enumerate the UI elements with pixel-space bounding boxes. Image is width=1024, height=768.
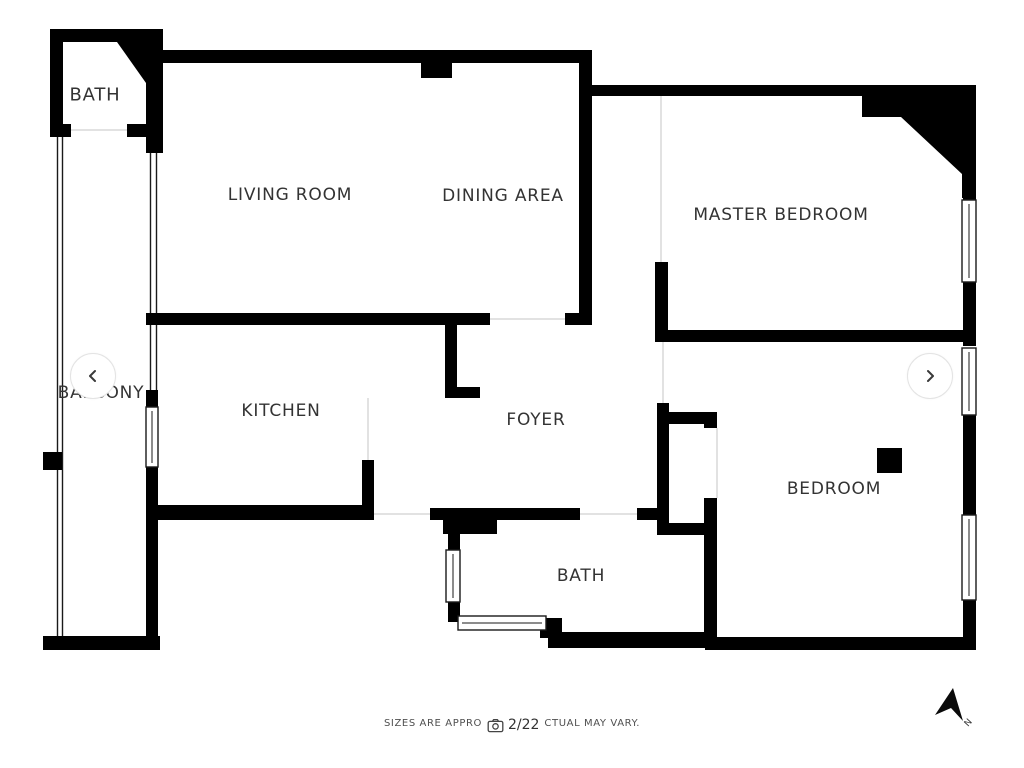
image-counter-text: 2/22 xyxy=(508,717,539,733)
room-label-bath-top: BATH xyxy=(70,85,121,106)
next-image-button[interactable] xyxy=(907,353,953,399)
north-label: N xyxy=(963,717,975,729)
room-label-dining-area: DINING AREA xyxy=(442,186,564,206)
door-guides-layer xyxy=(71,96,717,514)
room-label-foyer: FOYER xyxy=(506,410,565,430)
room-label-living-room: LIVING ROOM xyxy=(228,185,352,205)
disclaimer-text-right: CTUAL MAY VARY. xyxy=(544,718,640,729)
room-label-master-bedroom: MASTER BEDROOM xyxy=(693,205,868,225)
floorplan-viewer: BATH LIVING ROOM DINING AREA MASTER BEDR… xyxy=(0,0,1024,768)
north-arrow-icon: N xyxy=(925,680,1005,740)
disclaimer-text-left: SIZES ARE APPRO xyxy=(384,718,482,729)
footer: SIZES ARE APPRO 2/22 CTUAL MAY VARY. xyxy=(0,706,1024,740)
room-label-bedroom: BEDROOM xyxy=(787,479,881,499)
floorplan-drawing xyxy=(0,0,1024,768)
chevron-right-icon xyxy=(923,369,937,383)
previous-image-button[interactable] xyxy=(70,353,116,399)
room-label-bath-bottom: BATH xyxy=(557,566,605,586)
camera-icon xyxy=(487,718,504,733)
chevron-left-icon xyxy=(86,369,100,383)
room-label-kitchen: KITCHEN xyxy=(241,401,320,421)
image-counter: 2/22 xyxy=(482,715,544,735)
walls-layer xyxy=(43,29,976,650)
